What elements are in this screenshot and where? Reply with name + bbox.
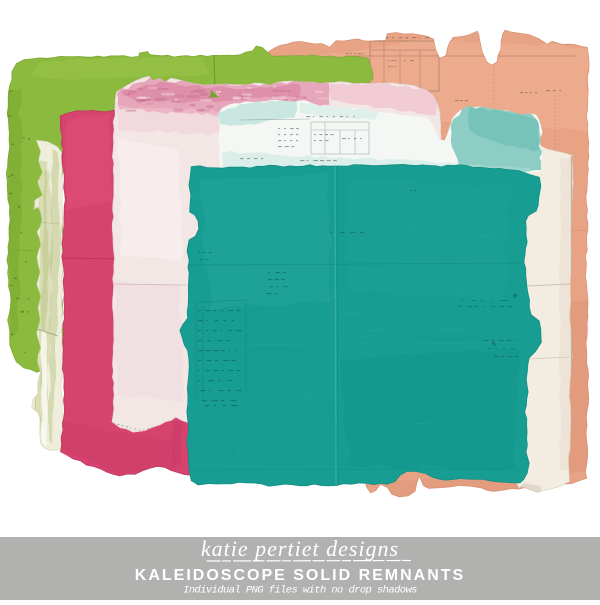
svg-text:Individual PNG files with no d: Individual PNG files with no drop shadow… <box>183 585 417 597</box>
svg-text:katie pertiet designs: katie pertiet designs <box>201 536 399 561</box>
svg-text:KALEIDOSCOPE SOLID REMNANTS: KALEIDOSCOPE SOLID REMNANTS <box>135 567 465 584</box>
